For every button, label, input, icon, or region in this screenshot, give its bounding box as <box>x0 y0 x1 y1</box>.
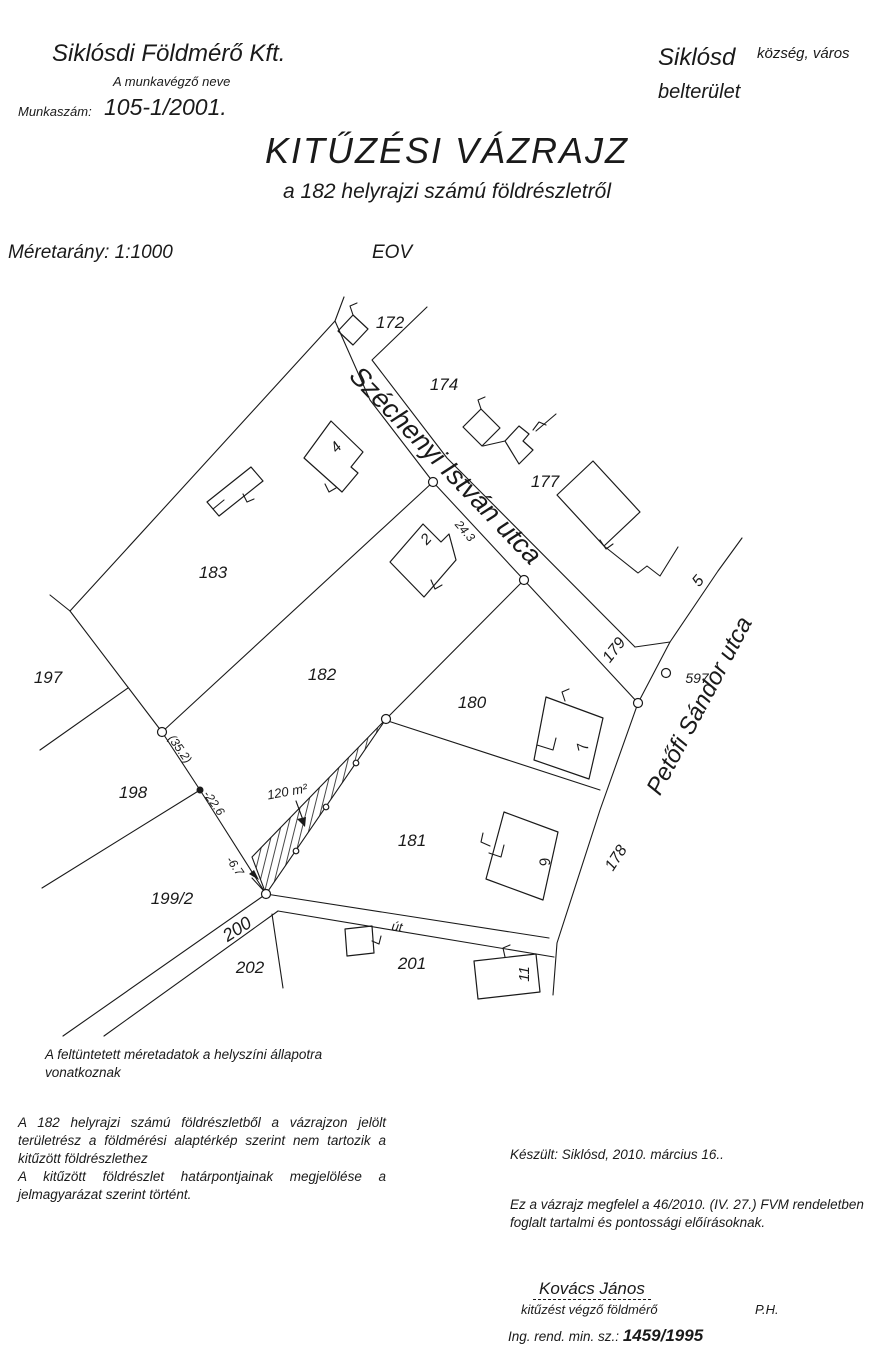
house-number-4: 4 <box>327 438 345 456</box>
parcel-label-202: 202 <box>235 958 265 977</box>
building-7-step <box>537 738 556 750</box>
staked-point-icon <box>293 848 299 854</box>
survey-sketch-page: Siklósdi Földmérő Kft. A munkavégző neve… <box>0 0 894 1351</box>
house-number-5: 5 <box>689 572 708 590</box>
fence-177-zigzag <box>604 546 678 576</box>
boundary-179-top <box>635 642 670 647</box>
parcel-label-180: 180 <box>458 693 487 712</box>
parcel-label-178: 178 <box>602 842 631 874</box>
staked-point-icon <box>382 715 391 724</box>
area-label-120: 120 m² <box>266 780 309 802</box>
parcel-label-182: 182 <box>308 665 337 684</box>
boundary-202-201 <box>272 914 283 988</box>
license-line: Ing. rend. min. sz.: 1459/1995 <box>508 1326 703 1346</box>
road-label-ut: út <box>391 918 405 935</box>
building-201 <box>345 926 374 956</box>
boundary-183-182 <box>162 482 433 732</box>
boundary-198-199 <box>42 790 200 888</box>
parcel-label-174: 174 <box>430 375 458 394</box>
surveyor-name: Kovács János <box>533 1279 651 1300</box>
regulation-statement: Ez a vázrajz megfelel a 46/2010. (IV. 27… <box>510 1196 886 1232</box>
road-ut-lower <box>278 911 554 957</box>
building-177 <box>557 461 640 546</box>
boundary-180-181 <box>388 721 600 790</box>
boundary-197-198 <box>40 688 128 750</box>
outbuilding-174 <box>505 426 533 464</box>
made-at-line: Készült: Siklósd, 2010. március 16.. <box>510 1147 724 1162</box>
building-172-flag-icon <box>350 303 357 315</box>
building-7-flag-icon <box>562 689 569 701</box>
measure-24-3: 24.3 <box>451 517 478 545</box>
boundary-182-180 <box>386 580 524 719</box>
measure-22-6: -22.6 <box>200 788 227 819</box>
outbuilding-183-step <box>213 500 224 509</box>
parcel-label-198: 198 <box>119 783 148 802</box>
building-174-flag-icon <box>478 397 485 409</box>
building-174 <box>463 409 500 446</box>
parcel-label-172: 172 <box>376 313 405 332</box>
staked-point-icon <box>262 890 271 899</box>
parcel-label-199-2: 199/2 <box>151 889 194 908</box>
street-petofi-west-edge <box>553 538 742 995</box>
boundary-point-icon <box>634 699 643 708</box>
boundary-point-icon <box>429 478 438 487</box>
parcel-label-183: 183 <box>199 563 228 582</box>
parcel-label-181: 181 <box>398 831 426 850</box>
house-number-9: 9 <box>536 855 555 868</box>
parcel-label-197: 197 <box>34 668 63 687</box>
parcel-label-179: 179 <box>599 634 629 666</box>
building-11-flag-icon <box>503 945 510 957</box>
boundary-dot-icon <box>197 787 204 794</box>
license-label: Ing. rend. min. sz.: <box>508 1329 619 1344</box>
note-measurements: A feltüntetett méretadatok a helyszíni á… <box>45 1046 350 1082</box>
parcel-label-201: 201 <box>397 954 426 973</box>
building-9-step <box>489 845 504 857</box>
street-name-petofi: Petőfi Sándor utca <box>641 612 758 799</box>
staked-point-icon <box>353 760 359 766</box>
house-number-11: 11 <box>516 966 533 982</box>
license-number: 1459/1995 <box>623 1326 703 1345</box>
house-number-2: 2 <box>417 530 436 549</box>
measure-35-2: (35.2) <box>165 732 194 766</box>
street-szechenyi-right-edge <box>372 307 635 647</box>
building-7 <box>534 697 603 779</box>
disputed-area-hatch <box>252 719 386 894</box>
parcel-label-177: 177 <box>531 472 560 491</box>
surveyor-role: kitűzést végző földmérő <box>521 1302 658 1317</box>
building-4 <box>304 421 363 492</box>
building-9-flag-icon <box>481 833 490 846</box>
building-172 <box>338 315 368 345</box>
stamp-placeholder: P.H. <box>755 1302 779 1317</box>
control-point-597-icon <box>662 669 671 678</box>
house-number-7: 7 <box>574 740 593 753</box>
staked-point-icon <box>323 804 329 810</box>
boundary-point-icon <box>520 576 529 585</box>
parcel-label-200: 200 <box>218 912 255 946</box>
outbuilding-183 <box>207 467 263 516</box>
boundary-west-chain <box>70 611 266 894</box>
boundary-197-tick <box>50 595 70 611</box>
map-labels: 172 174 177 183 197 182 180 198 181 199/… <box>34 313 758 982</box>
boundary-point-icon <box>158 728 167 737</box>
note-disputed-area: A 182 helyrajzi számú földrészletből a v… <box>18 1114 386 1169</box>
measure-6-7: -6.7 <box>223 854 247 880</box>
note-marking: A kitűzött földrészlet határpontjainak m… <box>18 1168 386 1204</box>
outbuilding-174-flag-icon <box>533 422 546 430</box>
surveyor-signature: Kovács János <box>533 1279 651 1299</box>
